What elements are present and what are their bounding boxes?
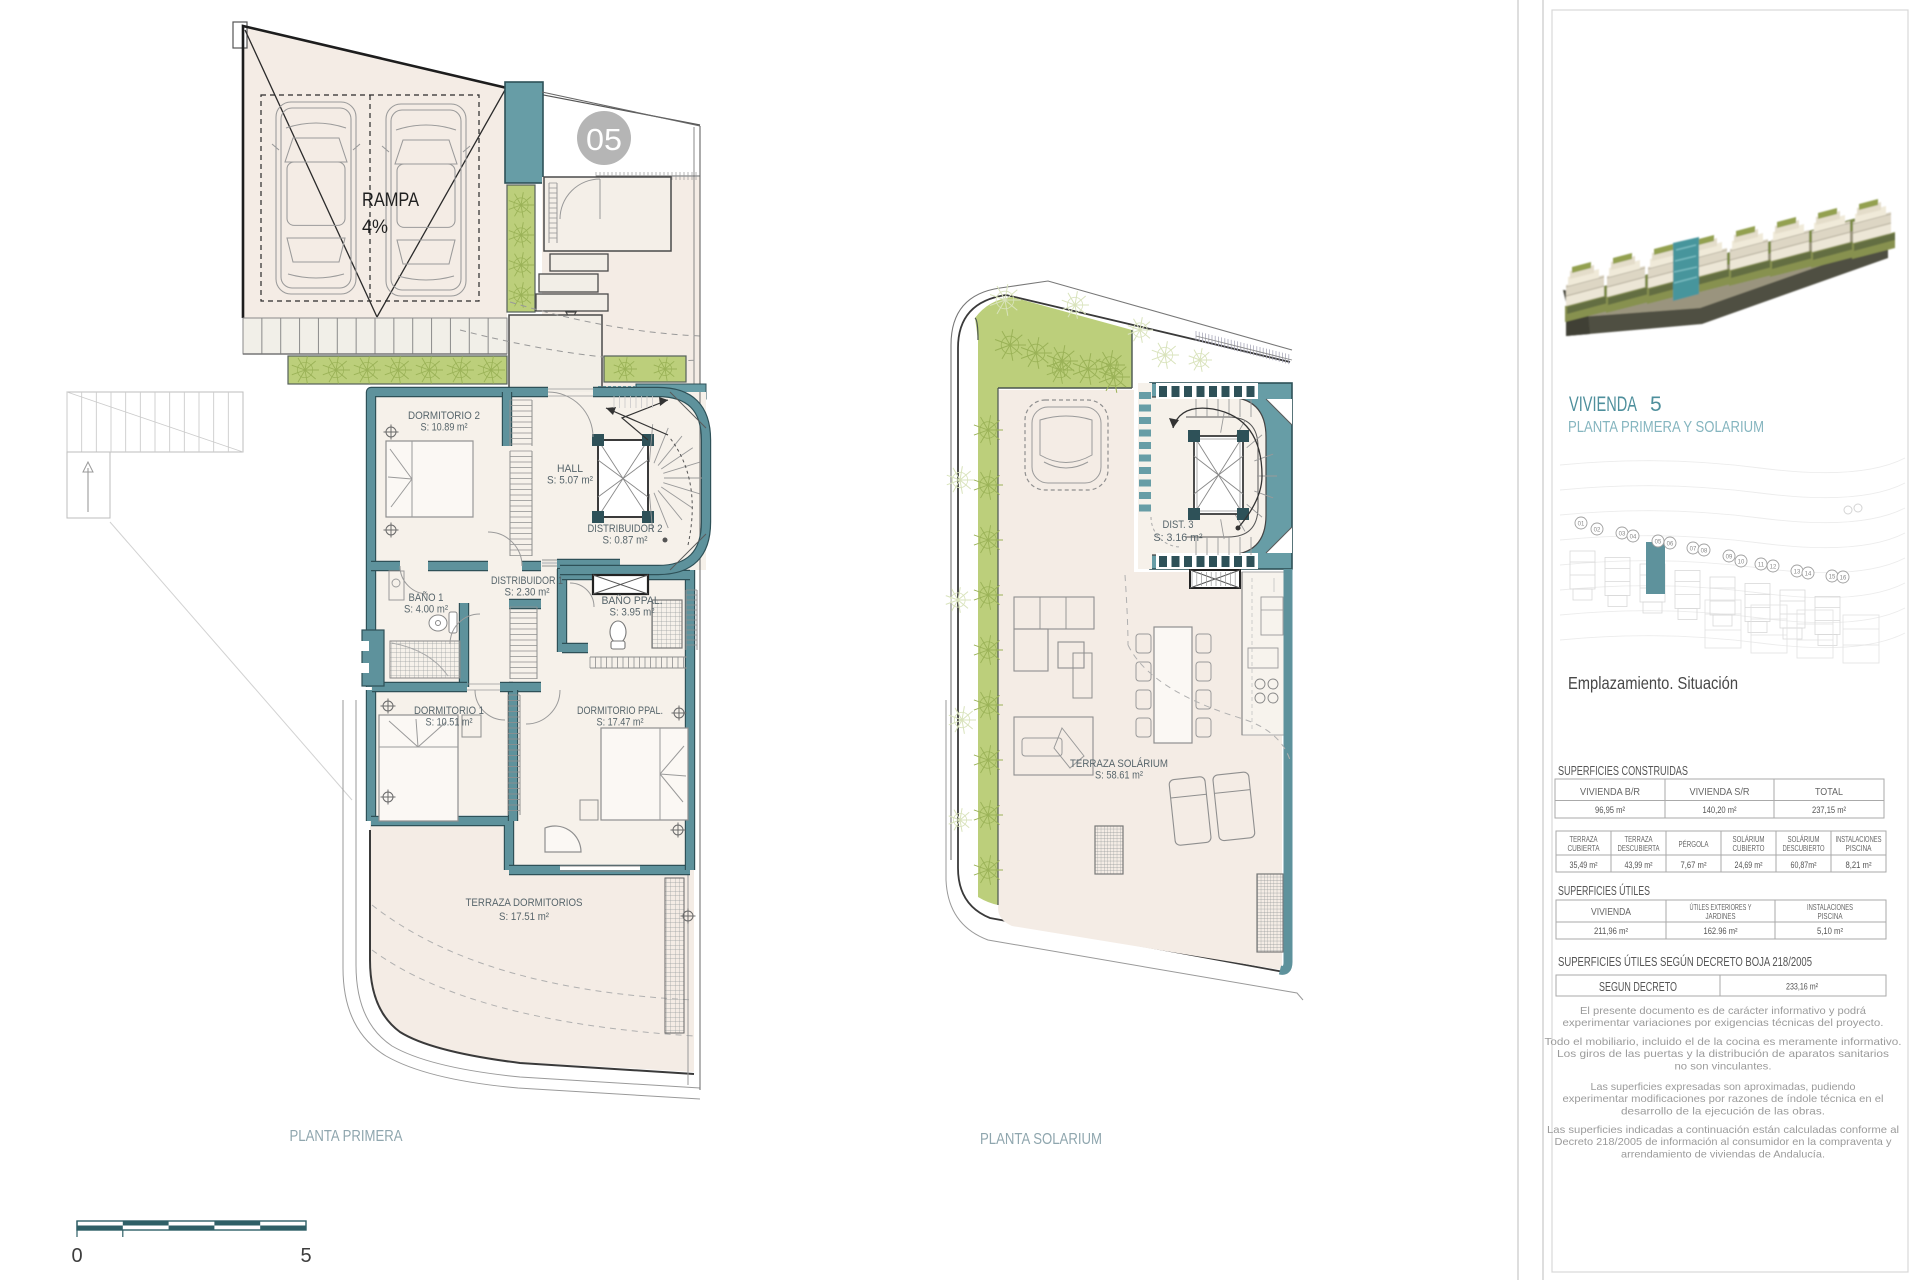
svg-text:PLANTA PRIMERA: PLANTA PRIMERA (290, 1128, 404, 1145)
svg-text:08: 08 (1701, 548, 1708, 554)
svg-text:S: 0.87 m²: S: 0.87 m² (603, 535, 648, 547)
svg-text:DORMITORIO 1: DORMITORIO 1 (414, 705, 484, 717)
svg-text:DESCUBIERTA: DESCUBIERTA (1618, 844, 1661, 853)
svg-text:BAÑO PPAL.: BAÑO PPAL. (602, 594, 663, 607)
svg-text:experimentar modificaciones po: experimentar modificaciones por razones … (1563, 1093, 1884, 1105)
svg-text:S: 5.07 m²: S: 5.07 m² (547, 475, 593, 487)
svg-text:Los giros de las puertas y la: Los giros de las puertas y la distribuci… (1557, 1048, 1889, 1060)
svg-text:233,16 m²: 233,16 m² (1786, 982, 1818, 993)
svg-text:RAMPA: RAMPA (362, 190, 419, 211)
svg-text:S: 58.61 m²: S: 58.61 m² (1095, 770, 1143, 782)
svg-text:SOLÁRIUM: SOLÁRIUM (1788, 835, 1820, 844)
svg-text:7,67 m²: 7,67 m² (1681, 860, 1707, 870)
svg-text:14: 14 (1805, 571, 1812, 577)
svg-text:96,95 m²: 96,95 m² (1595, 805, 1625, 816)
svg-text:S: 2.30 m²: S: 2.30 m² (505, 587, 550, 599)
svg-text:04: 04 (1630, 534, 1637, 540)
svg-text:DORMITORIO 2: DORMITORIO 2 (408, 410, 480, 422)
svg-text:237,15 m²: 237,15 m² (1812, 805, 1846, 816)
svg-text:13: 13 (1794, 569, 1801, 575)
svg-text:S: 17.47 m²: S: 17.47 m² (597, 717, 644, 729)
svg-text:S: 4.00 m²: S: 4.00 m² (404, 604, 448, 616)
svg-text:01: 01 (1578, 521, 1585, 527)
svg-text:05: 05 (1655, 539, 1662, 545)
svg-text:DESCUBIERTO: DESCUBIERTO (1783, 844, 1825, 853)
svg-text:24,69 m²: 24,69 m² (1735, 860, 1763, 870)
svg-text:4%: 4% (362, 217, 388, 238)
svg-text:VIVIENDA B/R: VIVIENDA B/R (1580, 787, 1640, 798)
svg-text:S: 10.89 m²: S: 10.89 m² (421, 422, 468, 434)
svg-text:SEGUN DECRETO: SEGUN DECRETO (1599, 980, 1677, 994)
svg-text:5: 5 (1650, 393, 1662, 416)
svg-text:S: 17.51 m²: S: 17.51 m² (499, 911, 549, 923)
svg-text:211,96 m²: 211,96 m² (1594, 926, 1628, 936)
svg-text:PÉRGOLA: PÉRGOLA (1679, 840, 1710, 849)
svg-text:DORMITORIO PPAL.: DORMITORIO PPAL. (577, 705, 663, 717)
svg-text:experimentar variaciones por e: experimentar variaciones por exigencias … (1563, 1017, 1884, 1029)
svg-text:16: 16 (1840, 575, 1847, 581)
svg-text:S: 3.16 m²: S: 3.16 m² (1154, 532, 1203, 544)
svg-text:PLANTA SOLARIUM: PLANTA SOLARIUM (980, 1131, 1102, 1148)
svg-text:43,99 m²: 43,99 m² (1625, 860, 1653, 870)
svg-text:07: 07 (1690, 546, 1697, 552)
svg-text:Las superficies indicadas a co: Las superficies indicadas a continuación… (1547, 1124, 1899, 1136)
svg-text:INSTALACIONES: INSTALACIONES (1836, 835, 1882, 844)
svg-text:SUPERFICIES CONSTRUIDAS: SUPERFICIES CONSTRUIDAS (1558, 764, 1688, 778)
svg-text:TOTAL: TOTAL (1815, 787, 1843, 798)
svg-text:5,10 m²: 5,10 m² (1817, 926, 1843, 936)
svg-text:0: 0 (71, 1245, 82, 1267)
svg-text:5: 5 (300, 1245, 311, 1267)
svg-text:PISCINA: PISCINA (1846, 844, 1873, 853)
svg-text:CUBIERTA: CUBIERTA (1568, 844, 1601, 853)
svg-text:VIVIENDA S/R: VIVIENDA S/R (1690, 787, 1750, 798)
svg-text:PLANTA PRIMERA Y SOLARIUM: PLANTA PRIMERA Y SOLARIUM (1568, 419, 1764, 436)
svg-text:12: 12 (1770, 564, 1777, 570)
svg-text:03: 03 (1619, 531, 1626, 537)
svg-text:15: 15 (1829, 574, 1836, 580)
svg-text:no son vinculantes.: no son vinculantes. (1675, 1060, 1772, 1072)
svg-text:desarrollo de la ejecución de: desarrollo de la ejecución de las obras. (1621, 1105, 1825, 1117)
svg-text:11: 11 (1758, 562, 1765, 568)
svg-text:Emplazamiento. Situación: Emplazamiento. Situación (1568, 673, 1738, 693)
svg-text:S: 3.95 m²: S: 3.95 m² (610, 607, 655, 619)
svg-text:BAÑO 1: BAÑO 1 (409, 591, 444, 604)
svg-text:60,87m²: 60,87m² (1791, 860, 1817, 870)
svg-text:JARDINES: JARDINES (1706, 911, 1736, 921)
svg-text:SUPERFICIES ÚTILES SEGÚN DECRE: SUPERFICIES ÚTILES SEGÚN DECRETO BOJA 21… (1558, 954, 1812, 969)
svg-text:10: 10 (1738, 559, 1745, 565)
svg-text:VIVIENDA: VIVIENDA (1569, 393, 1637, 416)
svg-text:DIST. 3: DIST. 3 (1163, 519, 1194, 531)
svg-text:35,49 m²: 35,49 m² (1570, 860, 1598, 870)
svg-text:09: 09 (1726, 554, 1733, 560)
svg-text:06: 06 (1667, 541, 1674, 547)
svg-text:S: 10.51 m²: S: 10.51 m² (426, 717, 473, 729)
svg-text:162.96 m²: 162.96 m² (1704, 926, 1738, 936)
svg-text:Las superficies expresadas son: Las superficies expresadas son aproximad… (1591, 1081, 1856, 1093)
svg-text:05: 05 (586, 122, 622, 157)
svg-text:El presente documento es de ca: El presente documento es de carácter inf… (1580, 1005, 1866, 1017)
svg-text:SOLÁRIUM: SOLÁRIUM (1733, 835, 1765, 844)
svg-text:DISTRIBUIDOR 1: DISTRIBUIDOR 1 (491, 575, 563, 587)
svg-text:8,21 m²: 8,21 m² (1846, 860, 1872, 870)
svg-text:Decreto 218/2005 de informació: Decreto 218/2005 de información al consu… (1555, 1136, 1893, 1148)
svg-text:arrendamiento de viviendas de: arrendamiento de viviendas de Andalucía. (1621, 1148, 1825, 1160)
svg-text:02: 02 (1594, 527, 1601, 533)
svg-text:140,20 m²: 140,20 m² (1703, 805, 1737, 816)
svg-text:TERRAZA: TERRAZA (1625, 835, 1654, 844)
svg-text:HALL: HALL (557, 463, 583, 475)
svg-text:Todo el mobiliario, incluido e: Todo el mobiliario, incluido el de la co… (1545, 1036, 1902, 1048)
svg-text:TERRAZA SOLÁRIUM: TERRAZA SOLÁRIUM (1070, 757, 1168, 770)
svg-text:SUPERFICIES ÚTILES: SUPERFICIES ÚTILES (1558, 883, 1650, 898)
svg-text:TERRAZA DORMITORIOS: TERRAZA DORMITORIOS (466, 897, 583, 909)
svg-text:TERRAZA: TERRAZA (1570, 835, 1599, 844)
svg-text:PISCINA: PISCINA (1818, 911, 1843, 921)
svg-text:CUBIERTO: CUBIERTO (1733, 844, 1765, 853)
svg-text:VIVIENDA: VIVIENDA (1591, 907, 1631, 918)
svg-text:DISTRIBUIDOR 2: DISTRIBUIDOR 2 (588, 523, 663, 535)
